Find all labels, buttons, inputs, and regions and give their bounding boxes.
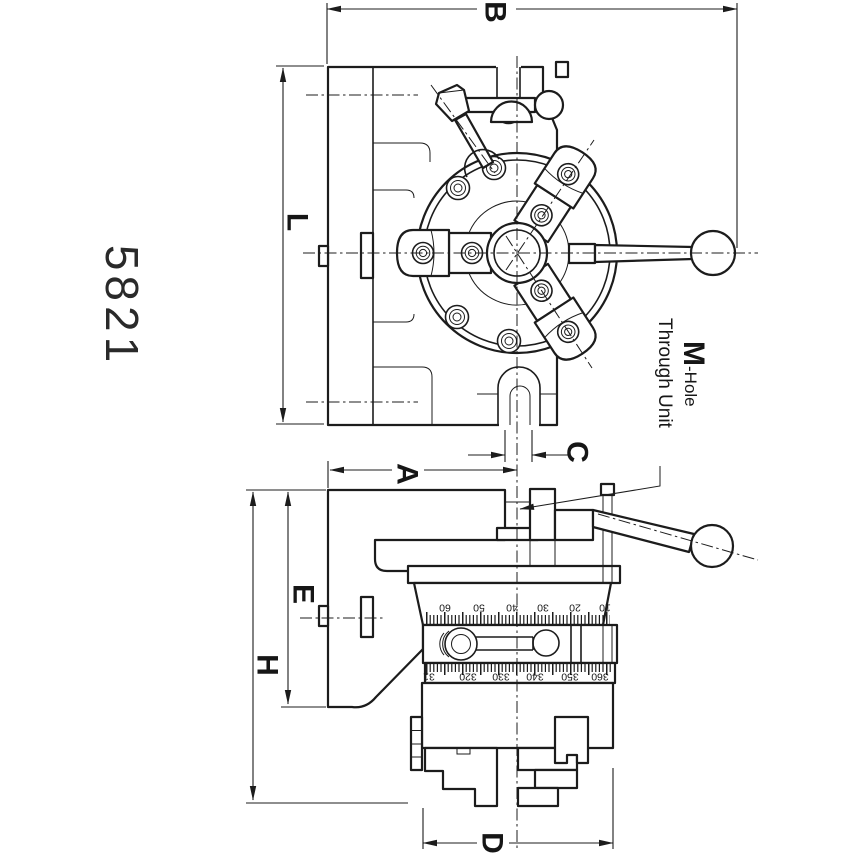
vernier-num: 30 <box>537 601 549 613</box>
dim-label-d: D <box>476 832 509 854</box>
chuck-side-view <box>411 683 613 806</box>
degree-num: 330 <box>492 670 510 682</box>
dim-label-l: L <box>281 213 314 231</box>
m-hole-callout: M-Hole Through Unit <box>654 318 710 429</box>
degree-num: 320 <box>459 670 477 682</box>
vernier-num: 20 <box>569 601 581 613</box>
degree-num: 340 <box>526 670 544 682</box>
worm-housing <box>555 510 593 540</box>
vernier-num: 50 <box>473 601 485 613</box>
dim-label-e: E <box>287 584 320 604</box>
handle-ball-side <box>691 525 733 567</box>
degree-num: 31 <box>423 670 435 682</box>
technical-drawing-5821: 5821 B L C A E H D M-Hole Through Unit 6… <box>0 0 854 854</box>
vernier-num: 10 <box>599 601 611 613</box>
tenon-key <box>319 246 328 266</box>
callout-line2: Through Unit <box>654 318 675 429</box>
handle-shaft-side <box>593 510 694 552</box>
dim-label-c: C <box>561 441 594 463</box>
side-view <box>319 466 733 806</box>
vernier-num: 60 <box>439 601 451 613</box>
drawing-page: 5821 B L C A E H D M-Hole Through Unit 6… <box>0 0 854 854</box>
svg-text:M-Hole: M-Hole <box>677 341 710 407</box>
vernier-num: 40 <box>506 601 518 613</box>
clamp-ball-knob <box>535 91 563 119</box>
dim-label-b: B <box>479 1 512 23</box>
part-number: 5821 <box>96 245 148 367</box>
degree-num: 360 <box>591 670 609 682</box>
degree-num: 350 <box>561 670 579 682</box>
table-band <box>408 566 620 583</box>
dim-label-a: A <box>391 463 424 485</box>
callout-suffix: -Hole <box>681 366 700 407</box>
dim-label-h: H <box>251 654 284 676</box>
tenon-key-inner <box>361 233 373 278</box>
callout-symbol: M <box>677 341 710 366</box>
spindle-block <box>530 489 555 540</box>
